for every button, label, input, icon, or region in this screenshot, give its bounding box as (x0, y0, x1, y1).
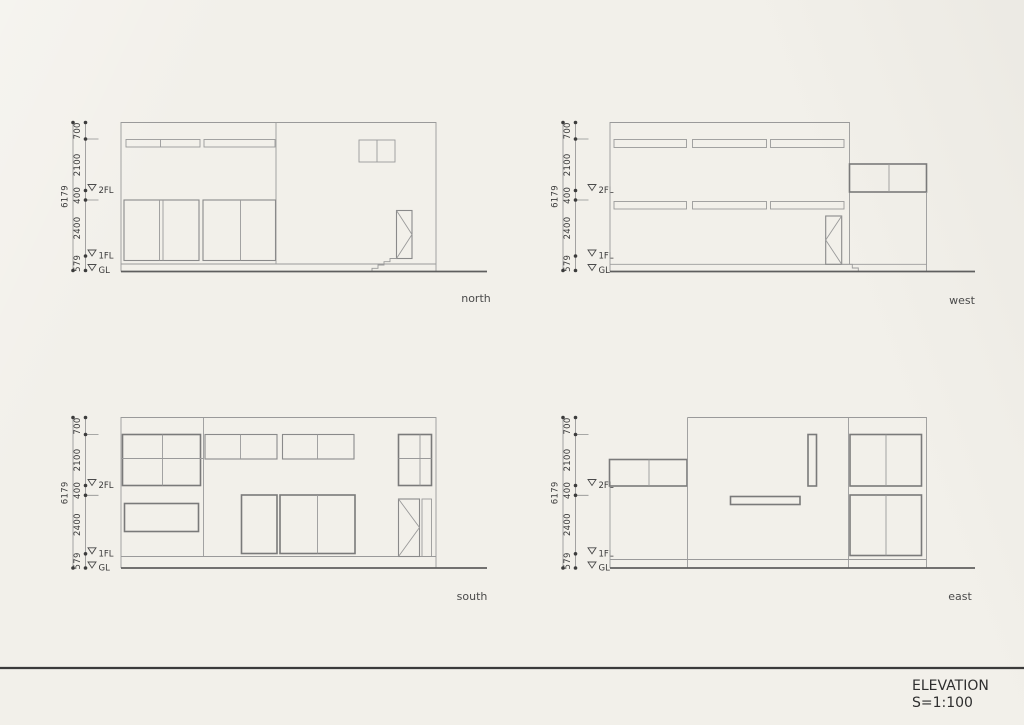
elevation-drawing: 6179 700 2100 400 2400 579 2FL 1FL GL (0, 0, 1024, 725)
dim-segment-label: 400 (563, 482, 573, 499)
dimension-dot (84, 416, 88, 420)
level-gl-marker-icon (88, 265, 96, 271)
west-dimension-chain: 6179 700 2100 400 2400 579 2FL 1FL GL (551, 121, 614, 276)
west-building (610, 123, 975, 272)
dimension-dot (574, 494, 578, 498)
door-brace (826, 216, 842, 264)
dim-segment-label: 400 (73, 187, 83, 204)
dimension-ticks (576, 139, 589, 200)
dimension-dot (84, 137, 88, 141)
strip-window (693, 140, 767, 148)
window (283, 435, 355, 460)
elevation-label-west: west (949, 294, 975, 307)
dim-segment-label: 700 (73, 122, 83, 139)
entrance-door (826, 216, 842, 264)
dimension-dot (84, 254, 88, 258)
dimension-dot (84, 494, 88, 498)
dimension-dot (574, 566, 578, 570)
level-2fl-label: 2FL (99, 481, 114, 491)
level-1fl-marker-icon (88, 250, 96, 256)
level-1fl-label: 1FL (99, 252, 114, 262)
dim-segment-label: 2100 (73, 153, 83, 176)
dimension-dot (574, 121, 578, 125)
dim-segment-label: 400 (563, 187, 573, 204)
strip-window (731, 497, 801, 505)
wing-window (850, 164, 927, 192)
dimension-dot (574, 137, 578, 141)
scale-text: S=1:100 (912, 695, 973, 711)
level-2fl-marker-icon (88, 185, 96, 191)
strip-window (126, 140, 200, 148)
dimension-dot (574, 433, 578, 437)
wing-window (610, 460, 688, 487)
building-outline (121, 418, 436, 569)
dim-segment-label: 2100 (563, 449, 573, 472)
north-dimension-chain: 6179 700 2100 400 2400 579 2FL 1FL GL (61, 121, 114, 276)
level-1fl-label: 1FL (599, 252, 614, 262)
dimension-dot (84, 552, 88, 556)
window (399, 435, 432, 486)
entrance-door (399, 499, 420, 557)
dim-segment-label: 2400 (563, 217, 573, 240)
building-outline (121, 123, 436, 272)
dim-segment-label: 579 (73, 255, 83, 272)
building-outline (610, 123, 850, 272)
title-text: ELEVATION (912, 678, 989, 694)
dimension-dot (84, 269, 88, 273)
dimension-dot (574, 269, 578, 273)
dim-total-label: 6179 (551, 185, 561, 208)
dim-total-label: 6179 (551, 481, 561, 504)
dimension-dot (84, 566, 88, 570)
dim-segment-label: 2100 (563, 153, 573, 176)
level-2fl-marker-icon (588, 185, 596, 191)
strip-window (771, 140, 845, 148)
strip-window (614, 140, 687, 148)
dimension-dot (574, 254, 578, 258)
dimension-dot (84, 484, 88, 488)
entrance-steps (372, 259, 397, 272)
window-mullion (399, 435, 432, 486)
east-building (610, 418, 976, 569)
level-2fl-label: 2FL (599, 186, 614, 196)
dimension-dot (84, 189, 88, 193)
window (203, 200, 276, 261)
south-building (121, 418, 487, 569)
strip-window (204, 140, 275, 148)
level-gl-marker-icon (588, 562, 596, 568)
level-2fl-marker-icon (88, 480, 96, 486)
slot-window (808, 435, 817, 487)
window (205, 435, 277, 460)
door-sidelight (422, 499, 432, 557)
elevation-label-south: south (457, 590, 488, 603)
elevation-label-east: east (948, 590, 972, 603)
east-elevation: 6179 700 2100 400 2400 579 2FL 1FL GL (551, 416, 976, 603)
west-elevation: 6179 700 2100 400 2400 579 2FL 1FL GL (551, 121, 976, 307)
dim-segment-label: 2400 (73, 513, 83, 536)
dimension-dot (574, 189, 578, 193)
dimension-dot (574, 552, 578, 556)
dim-segment-label: 400 (73, 482, 83, 499)
door-brace (397, 211, 413, 259)
elevation-label-north: north (461, 292, 491, 305)
window-mullion (160, 200, 164, 261)
level-2fl-label: 2FL (99, 186, 114, 196)
dim-total-label: 6179 (61, 481, 71, 504)
window (124, 200, 199, 261)
strip-window (693, 202, 767, 210)
south-dimension-chain: 6179 700 2100 400 2400 579 2FL 1FL GL (61, 416, 114, 574)
north-building (121, 123, 487, 272)
dim-segment-label: 2400 (73, 217, 83, 240)
entrance-door (397, 211, 413, 259)
dim-segment-label: 700 (563, 417, 573, 434)
dimension-dot (84, 198, 88, 202)
dimension-dot (574, 416, 578, 420)
window (125, 504, 199, 532)
dimension-dot (84, 433, 88, 437)
dim-segment-label: 2100 (73, 449, 83, 472)
dim-segment-label: 579 (563, 255, 573, 272)
level-1fl-marker-icon (588, 250, 596, 256)
window (242, 495, 278, 554)
dim-total-label: 6179 (61, 185, 71, 208)
window (123, 435, 201, 486)
level-gl-label: GL (99, 266, 111, 276)
title-block: ELEVATION S=1:100 (0, 668, 1024, 711)
door-brace (399, 499, 420, 557)
drawing-sheet: 6179 700 2100 400 2400 579 2FL 1FL GL (0, 0, 1024, 725)
south-elevation: 6179 700 2100 400 2400 579 2FL 1FL GL (61, 416, 488, 603)
dim-segment-label: 700 (73, 417, 83, 434)
entrance-steps (842, 264, 859, 271)
level-2fl-marker-icon (588, 480, 596, 486)
dimension-dot (574, 198, 578, 202)
level-gl-marker-icon (588, 265, 596, 271)
strip-window (614, 202, 687, 210)
level-1fl-marker-icon (588, 548, 596, 554)
dimension-ticks (576, 435, 589, 496)
dim-segment-label: 700 (563, 122, 573, 139)
level-gl-marker-icon (88, 562, 96, 568)
level-1fl-label: 1FL (599, 549, 614, 559)
level-gl-label: GL (99, 564, 111, 574)
level-1fl-label: 1FL (99, 549, 114, 559)
dim-segment-label: 2400 (563, 513, 573, 536)
east-dimension-chain: 6179 700 2100 400 2400 579 2FL 1FL GL (551, 416, 614, 574)
level-gl-label: GL (599, 266, 611, 276)
level-1fl-marker-icon (88, 548, 96, 554)
level-gl-label: GL (599, 564, 611, 574)
dim-segment-label: 579 (73, 552, 83, 569)
dimension-dot (574, 484, 578, 488)
north-elevation: 6179 700 2100 400 2400 579 2FL 1FL GL (61, 121, 491, 305)
building-outline (688, 418, 927, 569)
dim-segment-label: 579 (563, 552, 573, 569)
strip-window (771, 202, 845, 210)
dimension-dot (84, 121, 88, 125)
